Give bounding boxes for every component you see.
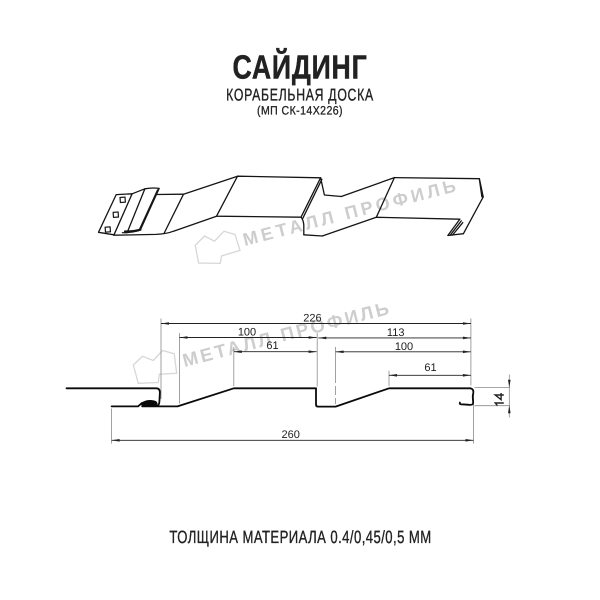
svg-text:113: 113 [387,327,405,339]
svg-text:КОРАБЕЛЬНАЯ ДОСКА: КОРАБЕЛЬНАЯ ДОСКА [226,86,374,105]
svg-text:260: 260 [282,429,300,441]
svg-text:61: 61 [266,340,278,352]
svg-text:ТОЛЩИНА МАТЕРИАЛА 0.4/0,45/0,5: ТОЛЩИНА МАТЕРИАЛА 0.4/0,45/0,5 ММ [169,527,431,547]
svg-text:61: 61 [424,362,436,374]
svg-text:(МП СК-14Х226): (МП СК-14Х226) [257,104,343,118]
svg-text:226: 226 [303,313,321,325]
svg-text:100: 100 [238,327,256,339]
svg-text:САЙДИНГ: САЙДИНГ [233,48,368,87]
svg-text:100: 100 [395,341,413,353]
